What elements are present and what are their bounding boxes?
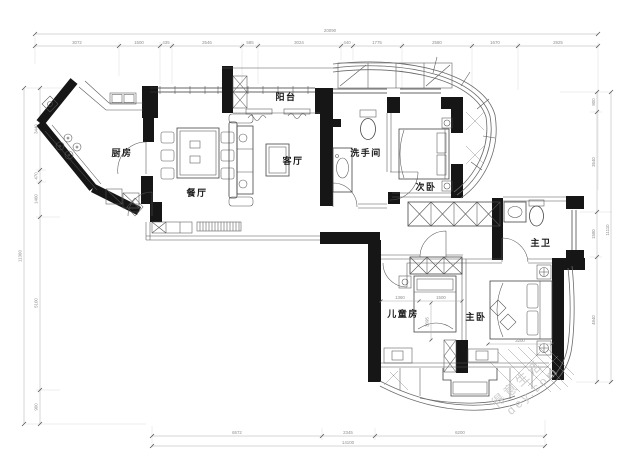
kids-desk <box>384 348 412 363</box>
wall-kitchen-pier <box>142 86 158 118</box>
sofa-back <box>229 122 237 198</box>
dim-bottom-2: 2345 <box>343 430 353 435</box>
second-bedroom-furniture <box>399 118 452 191</box>
dim-top-10: 1670 <box>490 40 500 45</box>
dining-table <box>177 128 219 178</box>
floorplan-canvas: 3072 1500 435 2546 585 3024 440 1775 258… <box>0 0 641 472</box>
shoe-bench <box>152 222 192 233</box>
dim-left-total: 11360 <box>18 250 23 262</box>
dim-left-3: 1460 <box>34 194 39 204</box>
watermark: 得意生活 dey.com <box>489 352 562 422</box>
dim-kids-right: 1500 <box>436 295 446 300</box>
kids-room-door <box>420 231 446 257</box>
dim-top-11: 2925 <box>553 40 563 45</box>
label-master-bath: 主卫 <box>530 237 551 248</box>
wall-master-right <box>552 262 564 380</box>
wall-balcony-pier <box>222 66 233 113</box>
wall-masterbath-left <box>492 198 503 260</box>
dim-top-8: 1775 <box>372 40 382 45</box>
vanity <box>333 148 352 192</box>
toilet <box>361 119 376 140</box>
dim-top-1: 3072 <box>72 40 82 45</box>
dim-left-5: 900 <box>34 403 39 411</box>
dim-bottom-total: 14100 <box>342 440 355 445</box>
wall-washroom-left <box>320 114 333 206</box>
label-master-bedroom: 主卧 <box>465 311 486 322</box>
dim-right-total: 11110 <box>605 224 610 236</box>
bed-second <box>399 129 449 179</box>
dim-right-1: 800 <box>591 98 596 106</box>
dim-kids-left: 1360 <box>395 295 405 300</box>
washroom-door <box>333 183 357 207</box>
dim-top-4: 2546 <box>202 40 212 45</box>
bed-master <box>490 281 552 339</box>
dim-right-2: 3540 <box>591 157 596 167</box>
label-kitchen: 厨房 <box>111 147 132 158</box>
curtain-symbol <box>248 114 306 121</box>
dim-top-5: 585 <box>246 40 254 45</box>
tv-unit <box>331 119 341 127</box>
master-bath-door <box>502 238 528 262</box>
dining-furniture <box>161 128 234 179</box>
kids-wardrobe <box>410 257 462 274</box>
master-bath-fixtures <box>504 200 544 226</box>
master-bedroom-door <box>383 263 407 287</box>
sofa-pillow <box>239 134 247 142</box>
walls <box>40 66 585 382</box>
dim-master-bed: 3200 <box>515 338 525 343</box>
cabinet-striped <box>197 222 241 231</box>
dim-right-4: 4840 <box>591 315 596 325</box>
bed-kids <box>414 276 456 332</box>
dining-chair <box>161 132 174 143</box>
dim-top-9: 2580 <box>432 40 442 45</box>
dim-top-2: 1500 <box>134 40 144 45</box>
dim-right-3: 1580 <box>591 229 596 239</box>
dim-bottom-3: 6200 <box>455 430 465 435</box>
dim-top-6: 3024 <box>294 40 304 45</box>
floorplan-drawing: 3072 1500 435 2546 585 3024 440 1775 258… <box>0 0 641 472</box>
dim-top-total: 20090 <box>324 28 337 33</box>
label-living: 客厅 <box>281 155 303 166</box>
label-second-bedroom: 次卧 <box>415 181 436 192</box>
label-balcony: 阳台 <box>275 91 296 102</box>
label-kids-room: 儿童房 <box>386 308 419 319</box>
label-washroom: 洗手间 <box>350 147 382 158</box>
hallway-closet <box>408 202 500 226</box>
label-dining: 餐厅 <box>185 187 207 198</box>
dim-left-4: 5100 <box>34 298 39 308</box>
toilet-tank <box>360 110 376 117</box>
dim-top-7: 440 <box>343 40 351 45</box>
dim-top-3: 435 <box>162 40 170 45</box>
wall-corridor-west <box>368 240 381 382</box>
bath-vanity <box>504 202 526 222</box>
dim-kids-depth: 3095 <box>425 317 430 327</box>
dim-bottom-1: 6572 <box>232 430 242 435</box>
bath-toilet <box>530 206 544 226</box>
dim-left-2: 470 <box>34 172 39 180</box>
